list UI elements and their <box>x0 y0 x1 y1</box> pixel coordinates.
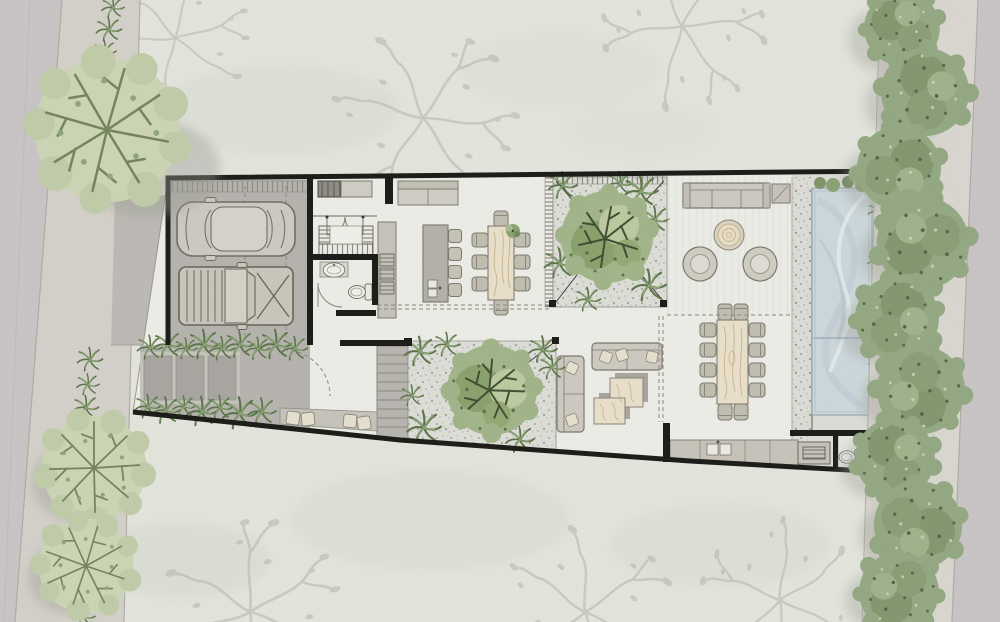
site-plan-svg <box>0 0 1000 622</box>
paper-texture-overlay <box>0 0 1000 622</box>
site-plan-stage <box>0 0 1000 622</box>
